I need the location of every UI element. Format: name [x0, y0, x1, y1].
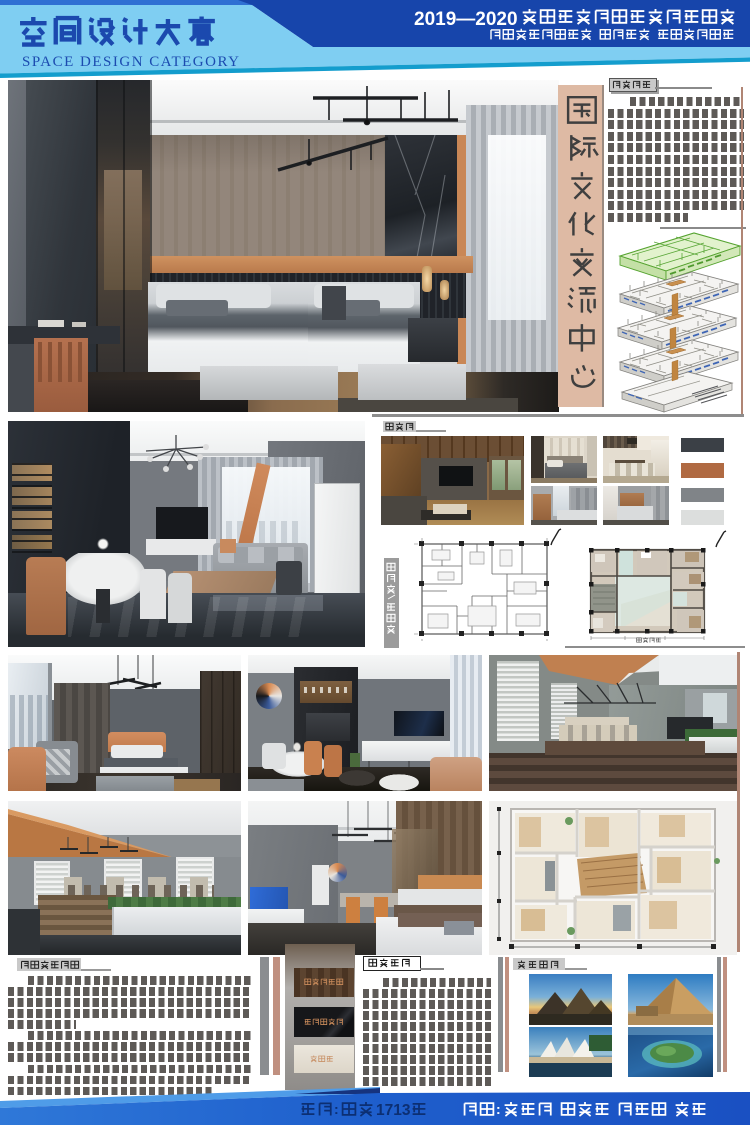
svg-text:SPACE DESIGN CATEGORY: SPACE DESIGN CATEGORY [22, 54, 240, 70]
svg-text::: : [496, 1101, 501, 1117]
svg-text:2019—2020: 2019—2020 [414, 9, 518, 30]
svg-text:1713: 1713 [376, 1102, 411, 1119]
svg-text::: : [334, 1101, 339, 1117]
